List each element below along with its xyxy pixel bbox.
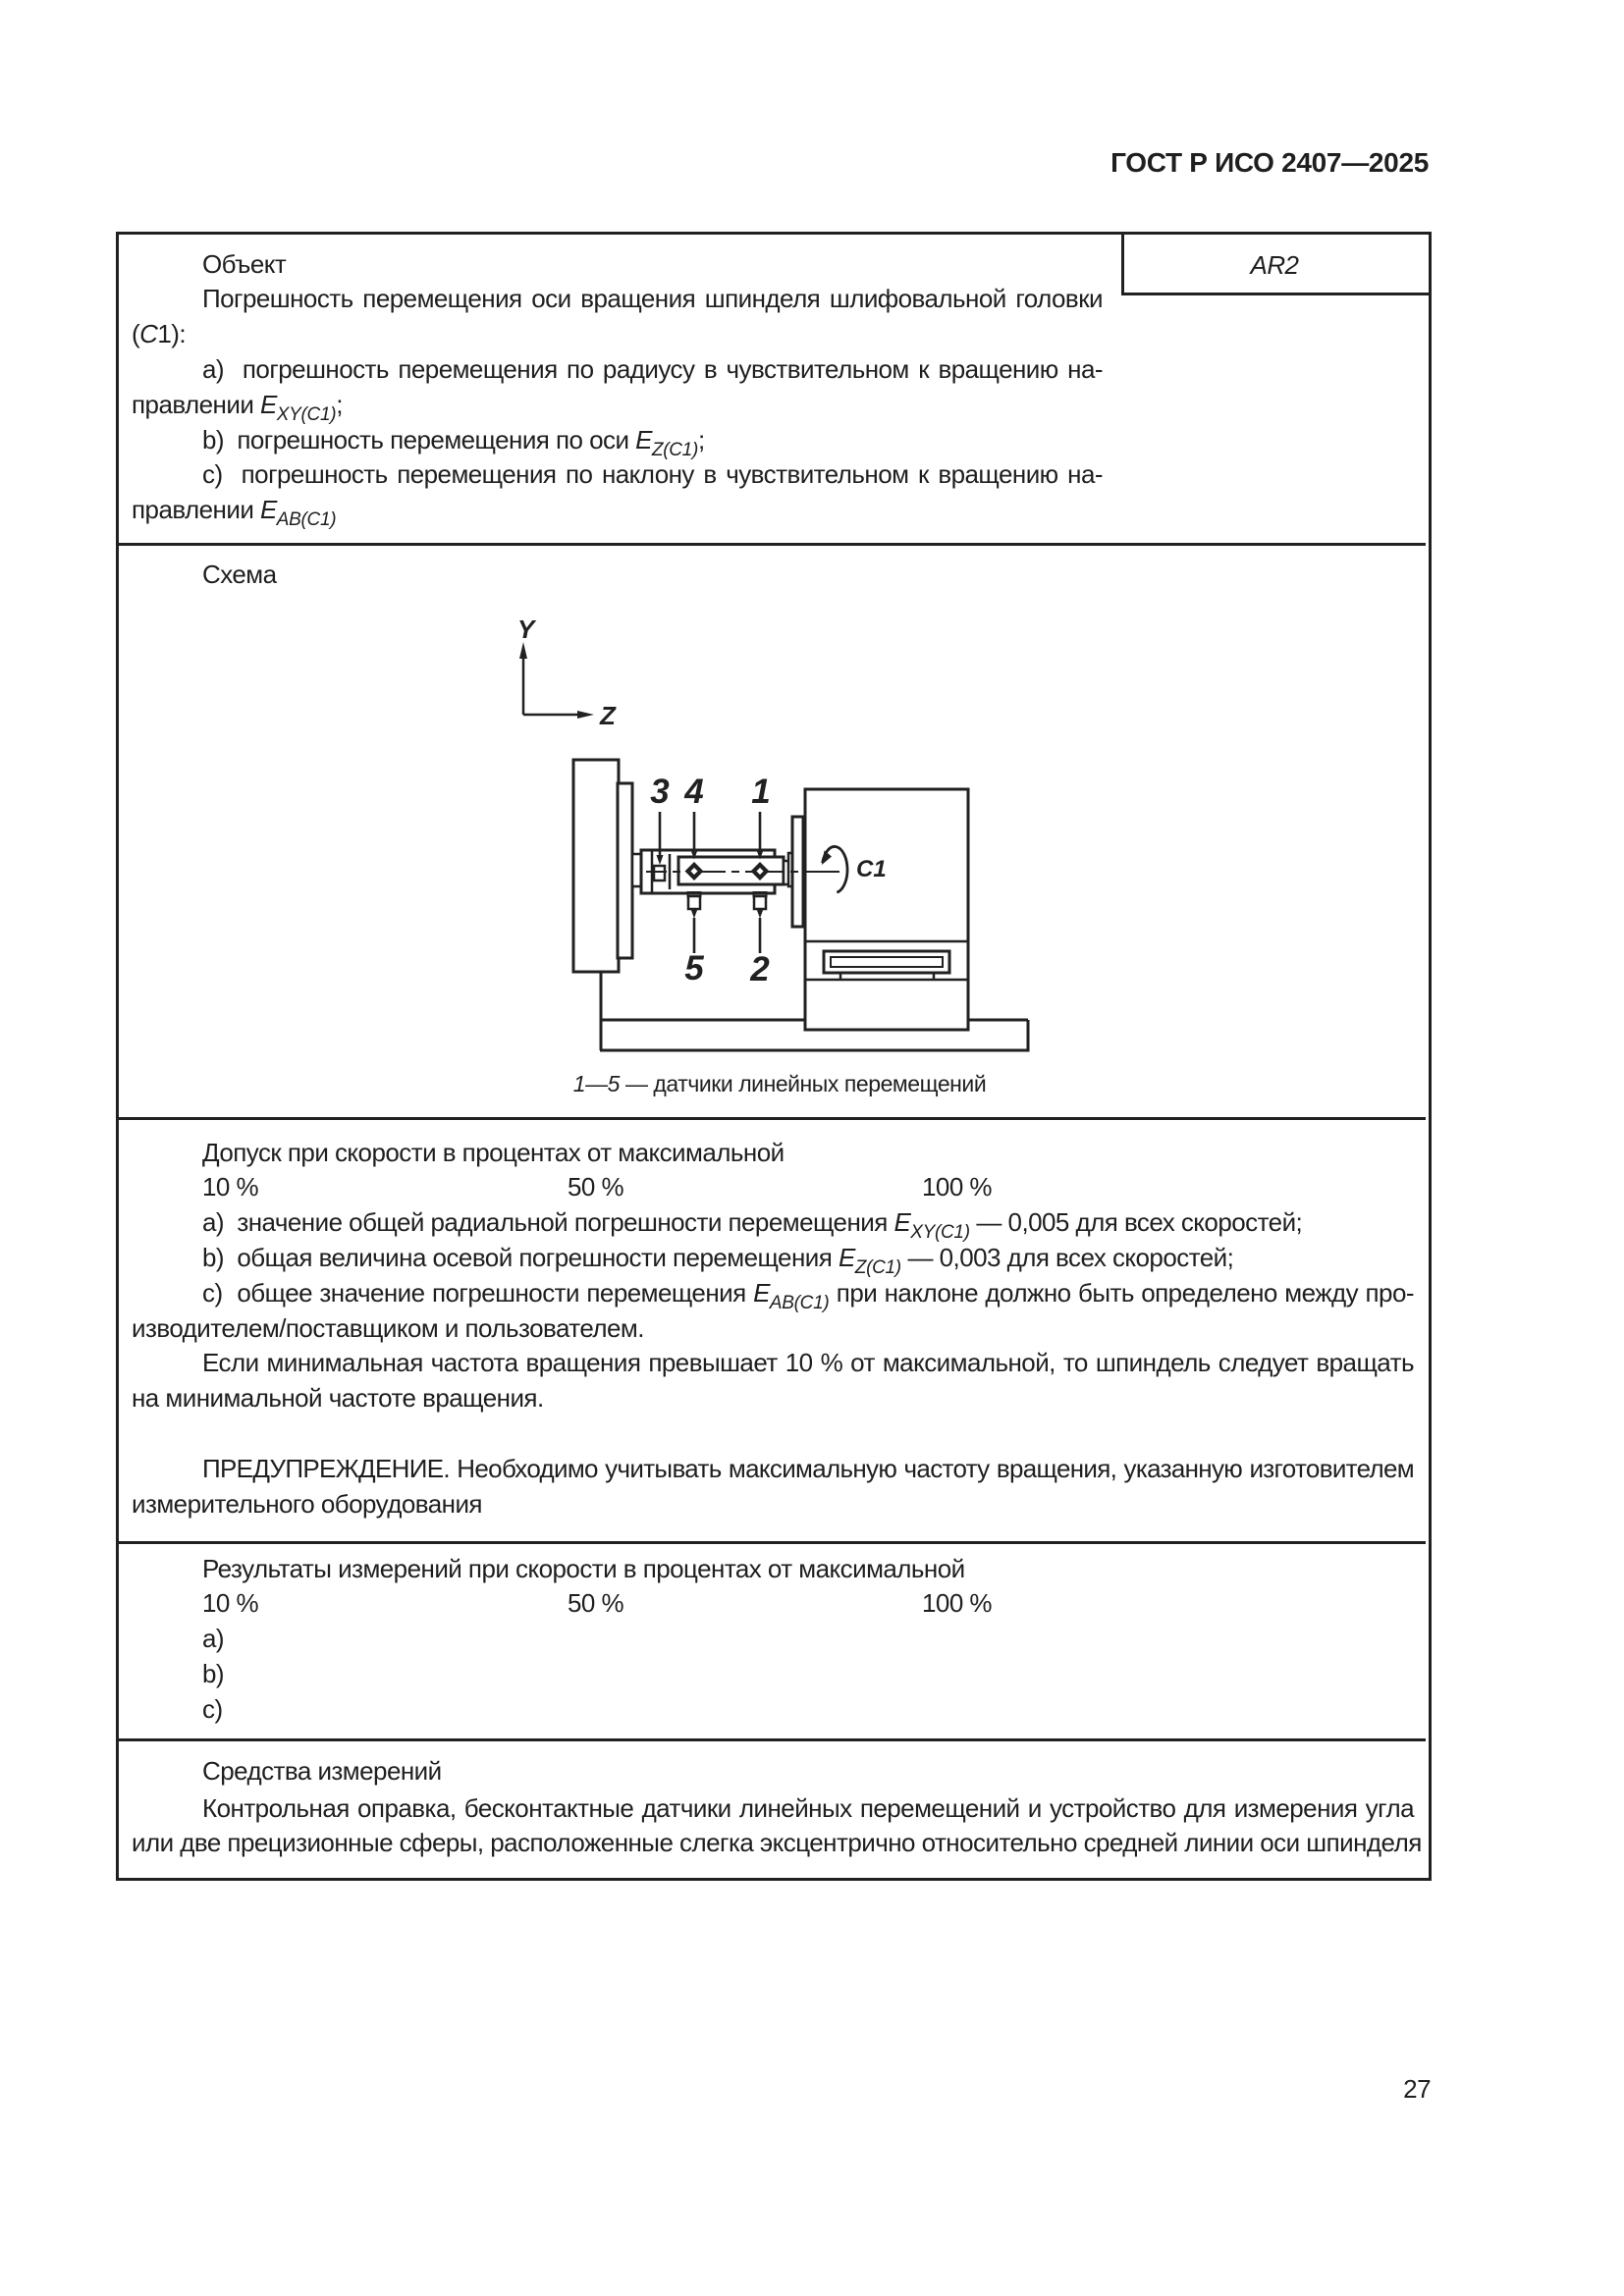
svg-text:2: 2 bbox=[749, 950, 770, 988]
svg-text:C1: C1 bbox=[856, 856, 887, 882]
svg-text:3: 3 bbox=[650, 773, 670, 811]
svg-text:5: 5 bbox=[684, 949, 704, 988]
svg-text:Y: Y bbox=[517, 614, 537, 644]
svg-text:4: 4 bbox=[683, 773, 703, 811]
svg-text:Z: Z bbox=[599, 701, 617, 730]
svg-text:1: 1 bbox=[751, 773, 770, 811]
